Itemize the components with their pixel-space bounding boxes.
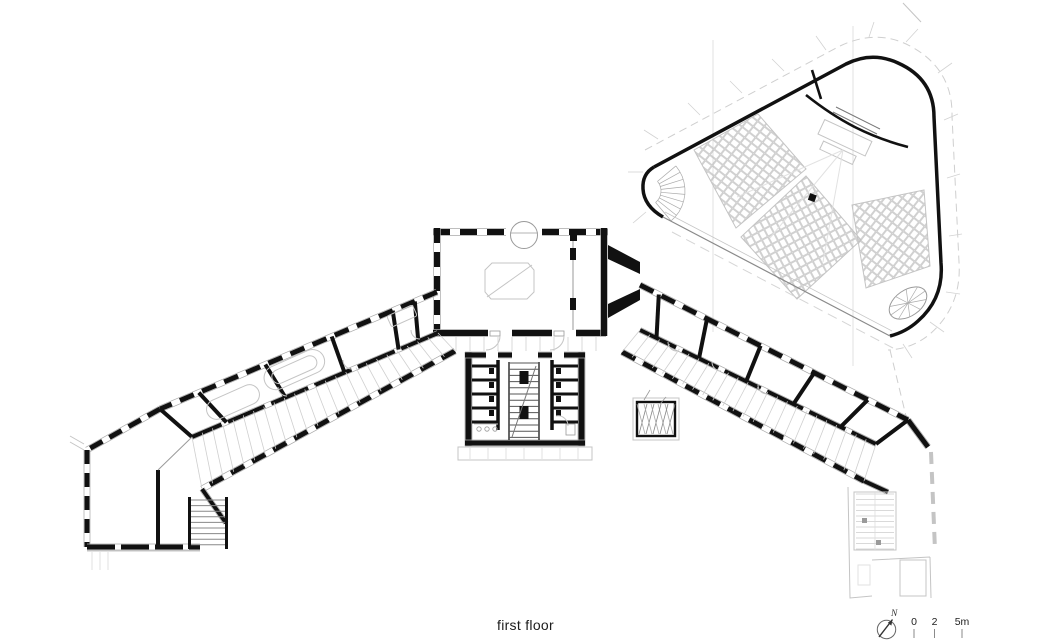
- door-leaf: [554, 331, 564, 336]
- flare-wall: [608, 289, 640, 318]
- flare-wall: [608, 245, 640, 274]
- ramp-line: [833, 112, 877, 134]
- interior-wall: [812, 70, 821, 99]
- bay-window: [511, 222, 538, 249]
- left-wing: [70, 289, 456, 570]
- curved-stair: [656, 166, 685, 221]
- construction-tick: [903, 3, 921, 22]
- scale-label-0: 0: [911, 616, 917, 628]
- exterior-steps: [92, 551, 108, 570]
- partition-post: [570, 248, 576, 260]
- lobby-paving: [456, 337, 596, 351]
- left-wing-walls: [84, 289, 456, 550]
- wc-stalls: [472, 360, 578, 430]
- scale-bar: 0 2 5m: [911, 616, 969, 638]
- auditorium-corner-wall: [643, 167, 663, 217]
- right-wing-walls: [621, 282, 931, 494]
- spiral-stair: [883, 280, 932, 325]
- stair-core: [456, 337, 596, 460]
- door-leaf: [490, 331, 500, 336]
- washbasin: [477, 427, 481, 431]
- hall-furniture-diagonal: [487, 265, 532, 297]
- ghost-stair: [856, 492, 894, 550]
- exterior-mark: [70, 436, 84, 450]
- hall-walls: [433, 228, 608, 337]
- central-hall: [433, 222, 640, 351]
- north-arrow-icon: N: [877, 609, 898, 639]
- core-stair: [509, 362, 539, 440]
- right-wing: [621, 282, 935, 598]
- north-label: N: [890, 609, 898, 619]
- annex-ghost: [848, 452, 935, 598]
- partition-post: [570, 232, 577, 241]
- terrace-outline: [458, 447, 592, 460]
- seating-block-right: [852, 190, 930, 288]
- corridor-edge: [158, 437, 192, 470]
- terrace-ticks: [470, 448, 578, 459]
- partition-post: [570, 298, 576, 310]
- elevator-shaft: [633, 390, 679, 440]
- washbasin: [485, 427, 489, 431]
- ramp-line: [836, 107, 880, 129]
- auditorium: [628, 3, 962, 416]
- floor-plan-drawing: first floor N 0 2 5m: [0, 0, 1050, 642]
- end-block-stair: [190, 497, 227, 549]
- scale-label-5m: 5m: [955, 616, 970, 628]
- plan-title: first floor: [497, 617, 554, 633]
- scale-label-2: 2: [932, 616, 938, 628]
- interior-curved-wall: [806, 95, 908, 147]
- wc-fixture: [566, 424, 575, 435]
- door-swing: [550, 336, 564, 350]
- floor-plan-page: first floor N 0 2 5m: [0, 0, 1050, 642]
- link-dashed-line: [890, 350, 906, 416]
